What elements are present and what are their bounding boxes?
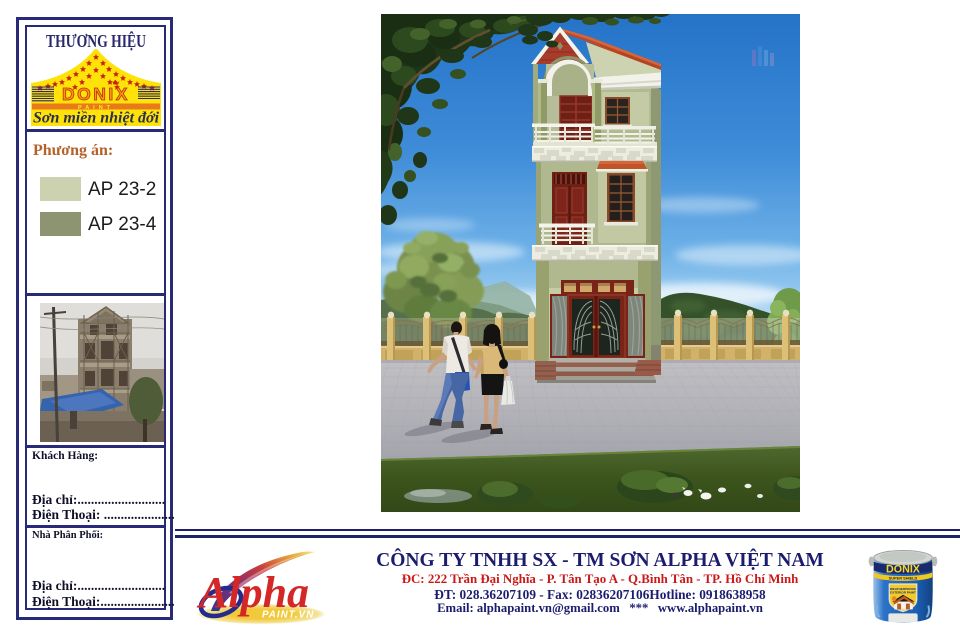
- svg-text:PAINT.VN: PAINT.VN: [262, 610, 314, 621]
- svg-text:EXTERIOR PAINT: EXTERIOR PAINT: [890, 590, 916, 594]
- svg-text:SUPER SHIELD: SUPER SHIELD: [889, 576, 918, 581]
- svg-text:Sơn miền nhiệt đới: Sơn miền nhiệt đới: [33, 110, 160, 127]
- svg-text:DONIX: DONIX: [886, 563, 921, 575]
- svg-text:DONIX: DONIX: [62, 84, 130, 104]
